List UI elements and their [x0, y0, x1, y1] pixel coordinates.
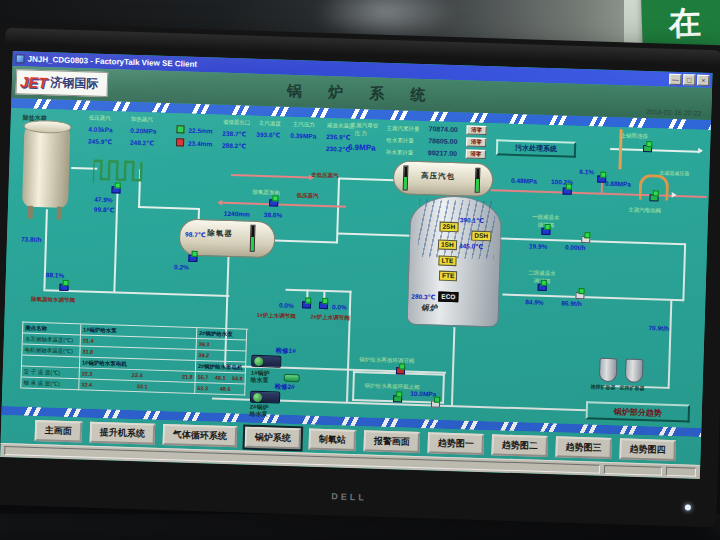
- main-pressure-value: 6.9MPa: [348, 143, 376, 153]
- reset-button[interactable]: 清零: [466, 125, 486, 135]
- pump1-icon[interactable]: [251, 355, 281, 368]
- close-button[interactable]: ×: [697, 75, 709, 86]
- cell-value: 21.8: [182, 373, 193, 380]
- nav-alarm-screen[interactable]: 报警画面: [363, 430, 420, 453]
- cell-value: 48.6: [220, 385, 231, 392]
- blowdown-tank: [625, 359, 644, 384]
- cell-value: 49.1: [215, 374, 226, 381]
- deaerator-vent-percent: 0.2%: [174, 263, 189, 271]
- nav-gas-circulation[interactable]: 气体循环系统: [163, 424, 238, 447]
- feed-pressure: 10.0MPa: [410, 390, 436, 398]
- steam-line-label: 低压蒸汽: [296, 192, 318, 199]
- nav-boiler-system[interactable]: 锅炉系统: [245, 426, 302, 449]
- feed-valve-percent: 88.1%: [46, 271, 65, 279]
- valve-icon[interactable]: [188, 255, 197, 262]
- valve-label: 一级减温水: [532, 213, 560, 220]
- pipe: [285, 289, 351, 293]
- pipe: [138, 206, 200, 210]
- valve-icon[interactable]: [575, 292, 584, 299]
- superheater-temp: 390.1℃: [460, 216, 484, 224]
- valve-icon[interactable]: [393, 395, 402, 402]
- cell-group: 63.3 48.6: [195, 383, 245, 396]
- status-led-red: [176, 138, 184, 146]
- tag-eco: ECO: [438, 292, 458, 303]
- nav-oxygen-station[interactable]: 制氧站: [309, 428, 357, 450]
- sewage-system-button[interactable]: 污水处理系统: [496, 139, 576, 158]
- valve-icon[interactable]: [643, 145, 652, 152]
- boiler-name: 锅炉: [421, 304, 438, 313]
- blowdown-label: 连排扩容器: [590, 384, 615, 391]
- economizer-temp: 280.3℃: [411, 293, 435, 301]
- steam-line-label: 去低压蒸汽: [311, 172, 339, 179]
- pipe: [682, 243, 686, 301]
- drum-name: 高压汽包: [421, 172, 455, 182]
- pressure-value: 0.39MPa: [290, 132, 316, 140]
- pressure-value: 4.03kPa: [88, 126, 112, 134]
- photo-scene: 在 JNJH_CDG0803 - FactoryTalk View SE Cli…: [0, 0, 720, 540]
- drum-level-value: 23.4mm: [188, 140, 212, 148]
- valve-icon[interactable]: [59, 284, 68, 291]
- tag-fte: FTE: [439, 271, 458, 282]
- flow-value: 86.9t/h: [561, 299, 582, 307]
- temp-value: 238.7℃: [222, 130, 246, 138]
- app-icon: [15, 54, 24, 63]
- cell-value: 63.3: [197, 385, 208, 392]
- valve-label: 锅炉给水再循环调节阀: [359, 356, 414, 364]
- feed-valve-label: 除氧器给水调节阀: [31, 296, 75, 304]
- blowdown-label: 定排扩容器: [619, 385, 644, 392]
- accumulator-value: 70874.00: [428, 125, 457, 134]
- pipe: [451, 327, 455, 406]
- boiler-trend-button[interactable]: 锅炉部分趋势: [586, 401, 691, 422]
- valve-label: 1#炉上水调节阀: [257, 312, 296, 320]
- level-indicator: [475, 168, 481, 193]
- valve-percent: 0.0%: [332, 303, 347, 311]
- nav-trend-2[interactable]: 趋势图二: [491, 434, 548, 457]
- temp-value: 393.6℃: [256, 131, 280, 139]
- steam-pressure: 0.88MPa: [605, 180, 631, 188]
- temp-value: 248.2℃: [130, 139, 154, 147]
- level-indicator: [403, 165, 409, 190]
- boiler-mimic: 除盐水箱 73.8t/h 47.9% 99.8℃ 88.1% 除氧器给水调节阀 …: [2, 108, 711, 428]
- run-indicator: [284, 374, 300, 382]
- tank-leg: [28, 206, 33, 219]
- valve-icon[interactable]: [581, 236, 590, 243]
- steam-pressure: 0.48MPa: [511, 177, 537, 185]
- coil-valve-percent: 47.9%: [94, 196, 113, 204]
- gauge-label: 主汽温度: [259, 120, 281, 127]
- status-panel: [666, 467, 696, 477]
- pipe: [442, 374, 445, 404]
- level-indicator: [250, 225, 256, 252]
- pump-status: 检修2#: [274, 382, 294, 390]
- main-pressure-label: 主蒸汽母管: [351, 122, 379, 129]
- deaerator-temp: 98.7℃: [185, 231, 206, 239]
- accumulator-label: 补水累计量: [386, 149, 414, 156]
- valve-icon[interactable]: [649, 194, 658, 201]
- pipe: [339, 177, 395, 181]
- datetime: 2014-02-16 20:22: [646, 108, 701, 117]
- pump-label: 给水泵: [249, 411, 267, 418]
- drum-level-value: 22.5mm: [188, 127, 212, 135]
- valve-label: 二级减温水: [528, 269, 556, 276]
- blowdown-tank: [599, 358, 618, 383]
- flow-value: 0.00t/h: [565, 244, 586, 252]
- deaerator-name: 除氧器: [207, 229, 233, 238]
- line-label: 主蒸汽电动阀: [628, 207, 661, 214]
- tag-1sh: 1SH: [438, 240, 457, 251]
- accumulator-value: 78605.00: [428, 137, 457, 146]
- reset-button[interactable]: 清零: [466, 137, 486, 147]
- pressure-value: 0.20MPa: [130, 127, 156, 135]
- valve-percent: 19.9%: [529, 242, 548, 250]
- accumulator-value: 99217.00: [428, 149, 457, 158]
- valve-icon[interactable]: [563, 187, 572, 194]
- steam-pipe: [601, 183, 603, 194]
- nav-trend-4[interactable]: 趋势图四: [619, 438, 676, 461]
- tag-dsh: DSH: [471, 231, 491, 242]
- valve-icon[interactable]: [319, 302, 328, 309]
- nav-main-screen[interactable]: 主画面: [35, 419, 83, 441]
- pipe: [337, 232, 685, 245]
- feedwater-flow: 70.9t/h: [648, 324, 669, 332]
- status-led-green: [176, 125, 184, 133]
- deaerator-level-percent: 38.6%: [264, 211, 283, 219]
- valve-icon[interactable]: [111, 186, 120, 193]
- accumulator-label: 给水累计量: [386, 137, 414, 144]
- tank-leg: [57, 207, 62, 220]
- valve-percent: 84.9%: [525, 298, 544, 306]
- wall-sign-text: 在: [668, 1, 702, 46]
- accumulator-label: 主蒸汽累计量: [387, 125, 420, 132]
- tank-flow-value: 73.8t/h: [21, 235, 42, 243]
- pump2-icon[interactable]: [250, 391, 280, 404]
- valve-icon[interactable]: [269, 199, 278, 206]
- monitor-brand: DELL: [0, 480, 717, 513]
- temp-value: 245.9℃: [88, 138, 112, 146]
- screen: JNJH_CDG0803 - FactoryTalk View SE Clien…: [0, 51, 712, 479]
- pipe: [610, 148, 698, 153]
- valve-icon[interactable]: [431, 400, 440, 407]
- row-label: 轴 承 温 度(℃): [21, 378, 79, 391]
- gauge-label: 加热蒸汽: [131, 116, 153, 123]
- valve-icon[interactable]: [396, 367, 405, 374]
- coil-valve-temp: 99.8℃: [94, 206, 115, 214]
- pipe: [43, 289, 229, 297]
- valve-label: 2#炉上水调节阀: [311, 314, 350, 322]
- gauge-label: 省煤器出口: [223, 119, 251, 126]
- tag-2sh: 2SH: [439, 222, 458, 233]
- cell-value: 54.8: [232, 375, 243, 382]
- tag-lte: LTE: [438, 256, 456, 267]
- cell-value: 55.7: [198, 374, 209, 381]
- valve-percent: 6.1%: [579, 168, 594, 176]
- pipe: [352, 371, 355, 401]
- deaerator-level-value: 1240mm: [224, 210, 250, 218]
- cell-value: 32.4: [81, 381, 92, 388]
- pump-temp-table: 测点名称 1#锅炉给水泵 2#锅炉给水泵 水泵侧轴承温度(℃) 31.4 39.…: [20, 322, 248, 396]
- pipe: [668, 299, 673, 389]
- flow-arrow-icon: [217, 200, 222, 206]
- temp-value: 236.9℃: [326, 133, 350, 141]
- valve-percent: 0.0%: [279, 302, 294, 310]
- valve-icon[interactable]: [302, 301, 311, 308]
- cell-value: 32.1: [137, 383, 148, 390]
- gauge-label: 主汽压力: [293, 121, 315, 128]
- nav-hoist-system[interactable]: 提升机系统: [90, 421, 156, 444]
- gauge-label: 低压蒸汽: [89, 115, 111, 122]
- reset-button[interactable]: 清零: [466, 149, 486, 159]
- steam-pipe: [222, 202, 346, 208]
- pump-label: 给水泵: [251, 377, 269, 384]
- water-tank: [22, 125, 71, 208]
- maximize-button[interactable]: □: [683, 74, 695, 85]
- pipe: [274, 239, 337, 243]
- line-label: 去减温减压器: [659, 170, 689, 177]
- cell-group: 32.4 32.1: [79, 379, 195, 394]
- cell-value: 22.3: [82, 370, 93, 377]
- minimize-button[interactable]: —: [669, 74, 681, 85]
- blowdown-line-label: 上锅筒连排: [620, 132, 648, 139]
- valve-icon[interactable]: [541, 228, 550, 235]
- flow-arrow-icon: [672, 192, 677, 198]
- temp-value: 288.2℃: [222, 142, 246, 150]
- pump-status: 检修1#: [275, 347, 295, 355]
- nav-trend-1[interactable]: 趋势图一: [427, 432, 484, 455]
- temp-value: 230.2℃: [326, 145, 350, 153]
- superheater-temp: 445.0℃: [459, 242, 483, 250]
- cell-value: 22.4: [132, 372, 143, 379]
- status-panel: [604, 465, 662, 476]
- nav-trend-3[interactable]: 趋势图三: [555, 436, 612, 459]
- pipe: [113, 184, 118, 292]
- monitor: JNJH_CDG0803 - FactoryTalk View SE Clien…: [0, 23, 720, 528]
- main-pressure-label: 压 力: [354, 130, 367, 137]
- valve-icon[interactable]: [538, 284, 547, 291]
- flow-arrow-icon: [698, 148, 703, 154]
- steam-pipe: [231, 174, 309, 178]
